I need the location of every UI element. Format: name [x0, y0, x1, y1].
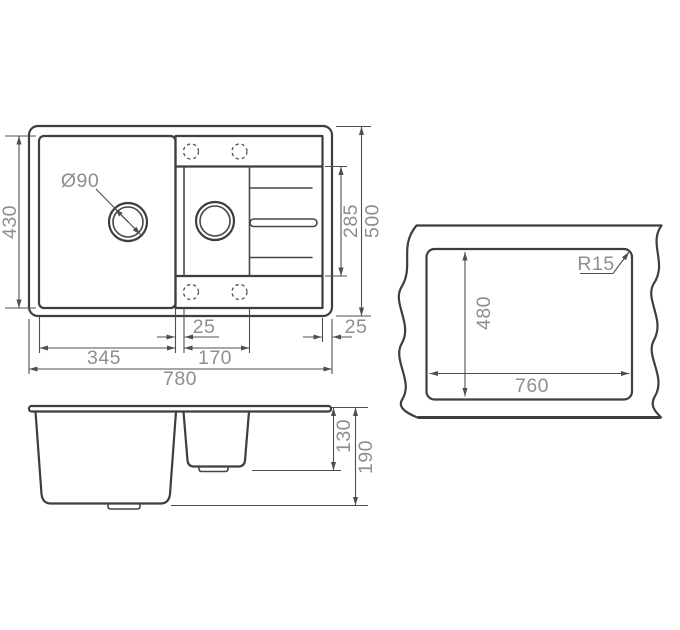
tap-hole-dashed-circle — [184, 144, 199, 159]
dim-label-480: 480 — [473, 296, 495, 330]
dim-label-500: 500 — [362, 204, 384, 238]
bottom-extension-lines — [29, 309, 332, 374]
tap-hole-dashed-circle — [184, 285, 199, 300]
main-bowl-profile — [36, 412, 177, 504]
dim-label-430: 430 — [0, 205, 21, 239]
dim-edge-offset: 25 — [303, 316, 367, 338]
drain-outer-circle — [196, 202, 234, 240]
dim-label-780: 780 — [163, 368, 197, 390]
tap-hole-dashed-circle — [232, 144, 247, 159]
dim-label-25-edge: 25 — [345, 316, 368, 338]
dim-label-190: 190 — [355, 440, 377, 474]
small-bowl-profile — [184, 412, 250, 467]
top-view: Ø90 430 285 500 — [0, 126, 384, 390]
small-bowl-drain — [196, 202, 234, 240]
dim-cutout-width: 760 — [430, 374, 630, 398]
dim-label-170: 170 — [198, 347, 232, 369]
drain-inner-circle — [200, 206, 230, 236]
dim-cutout-height: 480 — [465, 252, 495, 397]
dim-main-bowl-length: 430 — [0, 136, 36, 308]
groove-slot — [250, 219, 317, 227]
dim-corner-radius: R15 — [577, 252, 629, 275]
dim-label-760: 760 — [515, 375, 549, 397]
dim-main-bowl-depth: 190 — [355, 408, 377, 506]
dim-bowl-gap: 25 — [157, 316, 219, 338]
dim-total-width: 780 — [29, 368, 332, 390]
dim-label-285: 285 — [340, 204, 362, 238]
dim-label-25-gap: 25 — [193, 316, 216, 338]
dim-drain-section-length: 285 — [325, 167, 362, 277]
dim-small-bowl-width: 170 — [184, 347, 250, 369]
sink-technical-drawing-page: Ø90 430 285 500 — [0, 0, 680, 630]
dim-label-drain-diameter: Ø90 — [61, 170, 99, 192]
tap-hole-dashed-circle — [232, 285, 247, 300]
rim-profile — [29, 406, 331, 412]
cutout-view: 480 760 R15 — [399, 226, 662, 418]
dim-label-130: 130 — [333, 419, 355, 453]
side-view: 130 190 — [29, 406, 377, 509]
leader-line — [613, 252, 629, 274]
sink-outline — [29, 126, 332, 316]
dim-label-R15: R15 — [577, 253, 614, 275]
main-bowl-outline — [39, 136, 176, 308]
sink-technical-drawing: Ø90 430 285 500 — [0, 0, 680, 630]
drainboard-grooves — [250, 188, 317, 258]
dim-small-bowl-depth: 130 — [333, 408, 355, 471]
diameter-arrow-line — [115, 209, 128, 222]
dim-label-345: 345 — [87, 347, 121, 369]
dim-main-bowl-width: 345 — [40, 347, 176, 369]
